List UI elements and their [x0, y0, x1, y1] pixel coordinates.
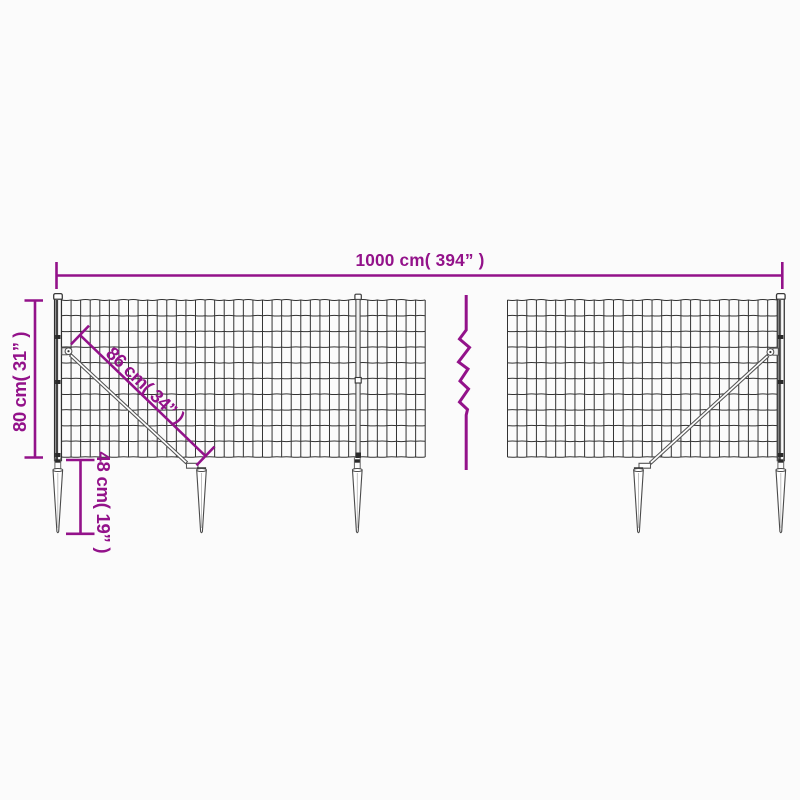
svg-text:1000 cm( 394” ): 1000 cm( 394” ): [355, 250, 484, 270]
svg-text:48 cm( 19” ): 48 cm( 19” ): [93, 452, 114, 554]
svg-text:80 cm( 31” ): 80 cm( 31” ): [9, 332, 30, 432]
